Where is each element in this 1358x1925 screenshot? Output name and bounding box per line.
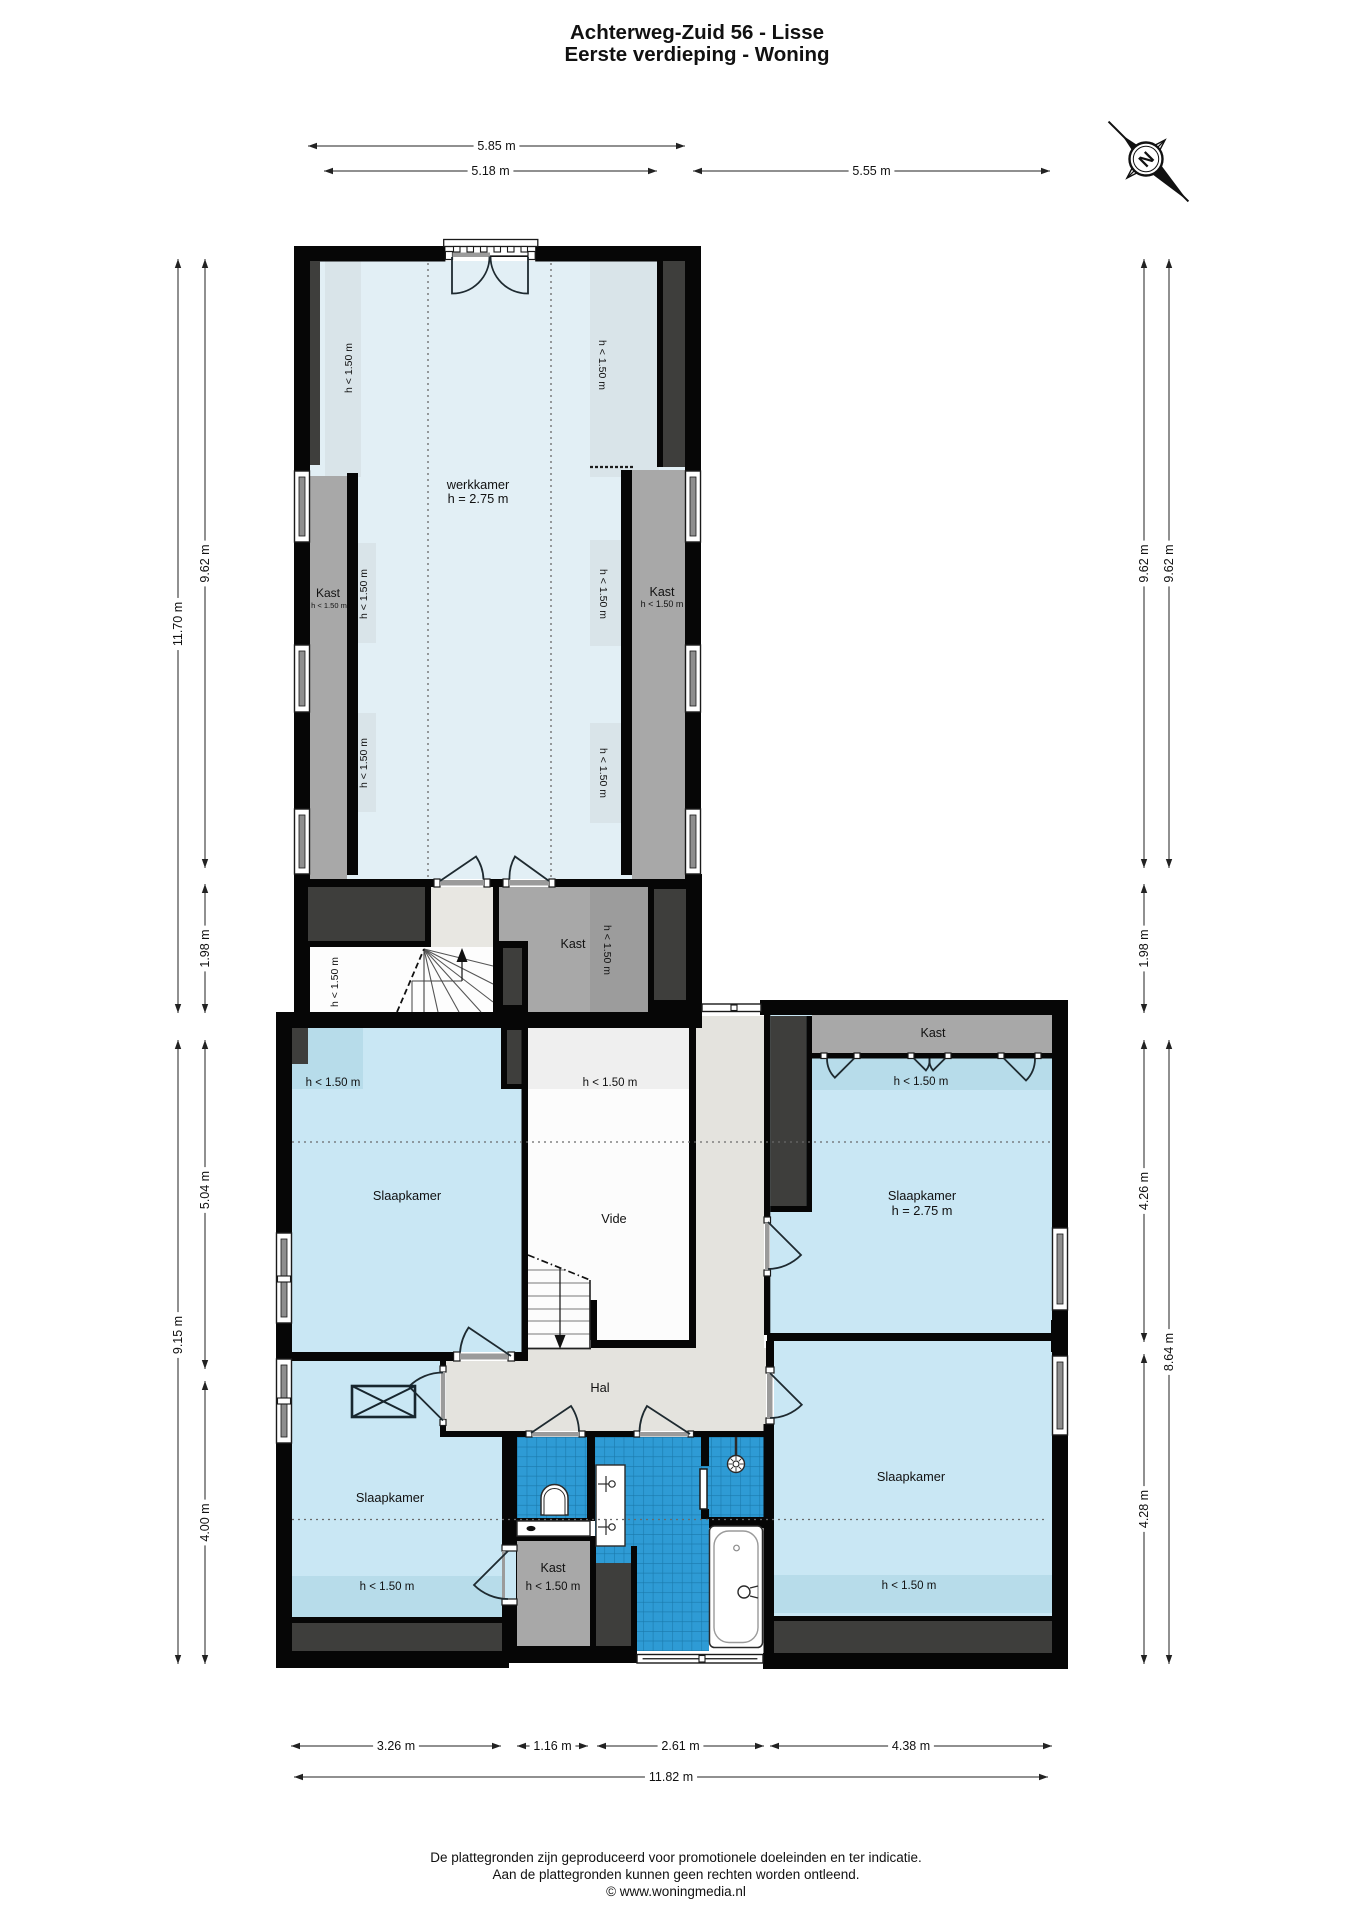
svg-text:4.28 m: 4.28 m <box>1137 1490 1151 1528</box>
svg-text:Vide: Vide <box>601 1211 626 1226</box>
svg-text:De plattegronden zijn geproduc: De plattegronden zijn geproduceerd voor … <box>430 1850 922 1865</box>
svg-text:Kast: Kast <box>649 585 675 599</box>
svg-text:11.70 m: 11.70 m <box>171 602 185 646</box>
svg-text:werkkamer: werkkamer <box>446 477 510 492</box>
svg-text:Kast: Kast <box>920 1026 946 1040</box>
svg-text:h < 1.50 m: h < 1.50 m <box>597 748 609 798</box>
svg-text:Hal: Hal <box>590 1380 609 1395</box>
svg-text:h < 1.50 m: h < 1.50 m <box>311 601 347 610</box>
svg-text:Slaapkamer: Slaapkamer <box>373 1188 442 1203</box>
svg-text:9.62 m: 9.62 m <box>198 544 212 582</box>
svg-text:h < 1.50 m: h < 1.50 m <box>641 599 684 609</box>
svg-text:h < 1.50 m: h < 1.50 m <box>329 957 341 1007</box>
svg-text:h = 2.75 m: h = 2.75 m <box>892 1203 953 1218</box>
svg-text:h < 1.50 m: h < 1.50 m <box>596 340 608 390</box>
svg-text:h < 1.50 m: h < 1.50 m <box>583 1077 638 1089</box>
svg-text:Eerste verdieping - Woning: Eerste verdieping - Woning <box>564 43 829 66</box>
svg-text:4.00 m: 4.00 m <box>198 1503 212 1541</box>
svg-text:5.18 m: 5.18 m <box>471 164 509 178</box>
svg-text:© www.woningmedia.nl: © www.woningmedia.nl <box>606 1884 746 1899</box>
svg-text:8.64 m: 8.64 m <box>1162 1333 1176 1371</box>
svg-text:5.04 m: 5.04 m <box>198 1171 212 1209</box>
svg-text:h < 1.50 m: h < 1.50 m <box>882 1580 937 1592</box>
svg-text:9.62 m: 9.62 m <box>1137 544 1151 582</box>
svg-text:h < 1.50 m: h < 1.50 m <box>360 1581 415 1593</box>
svg-text:h < 1.50 m: h < 1.50 m <box>894 1076 949 1088</box>
svg-text:1.16 m: 1.16 m <box>533 1739 571 1753</box>
svg-text:h < 1.50 m: h < 1.50 m <box>358 569 370 619</box>
svg-text:Slaapkamer: Slaapkamer <box>877 1469 946 1484</box>
svg-text:h < 1.50 m: h < 1.50 m <box>358 738 370 788</box>
svg-text:Slaapkamer: Slaapkamer <box>356 1490 425 1505</box>
svg-text:h < 1.50 m: h < 1.50 m <box>601 925 613 975</box>
svg-text:h < 1.50 m: h < 1.50 m <box>343 343 355 393</box>
svg-text:11.82 m: 11.82 m <box>649 1770 693 1784</box>
svg-text:3.26 m: 3.26 m <box>377 1739 415 1753</box>
svg-text:Kast: Kast <box>540 1561 566 1575</box>
svg-text:5.85 m: 5.85 m <box>477 139 515 153</box>
svg-text:Kast: Kast <box>560 937 586 951</box>
svg-text:h < 1.50 m: h < 1.50 m <box>306 1077 361 1089</box>
svg-text:5.55 m: 5.55 m <box>852 164 890 178</box>
svg-text:h = 2.75 m: h = 2.75 m <box>448 491 509 506</box>
svg-text:h < 1.50 m: h < 1.50 m <box>526 1581 581 1593</box>
svg-text:9.62 m: 9.62 m <box>1162 544 1176 582</box>
svg-text:Achterweg-Zuid 56 - Lisse: Achterweg-Zuid 56 - Lisse <box>570 21 824 44</box>
svg-text:Aan de plattegronden kunnen ge: Aan de plattegronden kunnen geen rechten… <box>492 1867 859 1882</box>
svg-text:Slaapkamer: Slaapkamer <box>888 1188 957 1203</box>
svg-text:4.38 m: 4.38 m <box>892 1739 930 1753</box>
svg-text:Kast: Kast <box>316 586 341 600</box>
svg-text:1.98 m: 1.98 m <box>198 929 212 967</box>
svg-text:h < 1.50 m: h < 1.50 m <box>597 569 609 619</box>
svg-text:1.98 m: 1.98 m <box>1137 929 1151 967</box>
svg-text:2.61 m: 2.61 m <box>661 1739 699 1753</box>
svg-text:4.26 m: 4.26 m <box>1137 1172 1151 1210</box>
svg-text:9.15 m: 9.15 m <box>171 1316 185 1354</box>
